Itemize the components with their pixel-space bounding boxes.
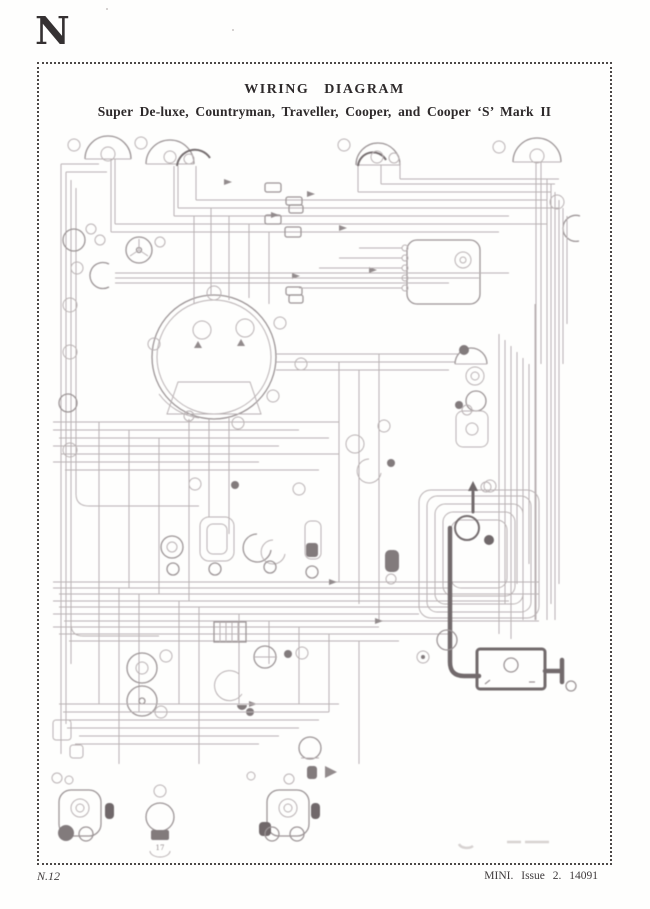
wiper-motor-group xyxy=(161,420,399,584)
side-lamp-center xyxy=(299,737,337,779)
starter-solenoid xyxy=(417,481,494,676)
wiring-loops xyxy=(419,490,539,618)
scan-speck xyxy=(232,29,234,31)
wiring-diagram: 17 xyxy=(39,64,610,863)
issue-reference: MINI. Issue 2. 14091 xyxy=(484,870,598,882)
tail-lamp-right xyxy=(247,772,320,841)
control-box xyxy=(299,240,480,304)
headlamp-left xyxy=(68,136,131,232)
speedometer-cluster xyxy=(148,208,459,620)
horn xyxy=(71,262,509,289)
harness-right xyxy=(499,179,567,639)
distributor xyxy=(126,237,165,263)
callout-17-label: 17 xyxy=(156,844,165,852)
dotted-border-frame: WIRING DIAGRAM Super De-luxe, Countryman… xyxy=(37,62,612,865)
switch-stack xyxy=(455,345,496,492)
tail-lamp-left xyxy=(52,773,114,841)
section-letter: N xyxy=(35,12,70,50)
fuel-pump xyxy=(215,646,308,716)
scanned-page: N WIRING DIAGRAM Super De-luxe, Countrym… xyxy=(0,0,650,909)
harness-mid xyxy=(53,422,539,764)
fuse-box xyxy=(214,622,246,642)
number-plate-lamp: 17 xyxy=(146,785,174,857)
page-number: N.12 xyxy=(37,869,60,884)
headlamp-left-inner xyxy=(135,137,210,216)
left-edge-junctions xyxy=(59,298,77,457)
battery xyxy=(477,649,576,691)
flasher-unit xyxy=(63,224,105,251)
scan-speck xyxy=(106,8,108,10)
print-smudge xyxy=(459,842,549,848)
